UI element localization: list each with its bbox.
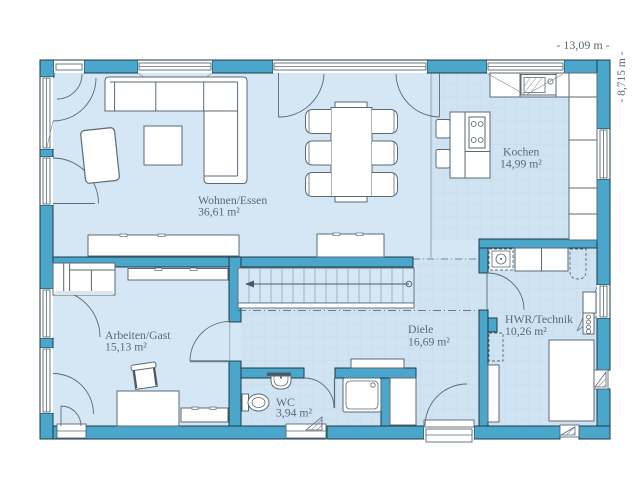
svg-text:Diele: Diele xyxy=(408,323,433,336)
svg-text:36,61 m²: 36,61 m² xyxy=(198,206,240,219)
svg-text:3,94 m²: 3,94 m² xyxy=(276,407,312,420)
svg-text:15,13 m²: 15,13 m² xyxy=(105,341,147,354)
svg-text:- 13,09 m -: - 13,09 m - xyxy=(556,38,609,52)
svg-text:10,26 m²: 10,26 m² xyxy=(505,325,547,338)
svg-text:16,69 m²: 16,69 m² xyxy=(408,336,450,349)
svg-text:- 8,715 m -: - 8,715 m - xyxy=(616,51,628,102)
svg-text:14,99 m²: 14,99 m² xyxy=(500,158,542,171)
